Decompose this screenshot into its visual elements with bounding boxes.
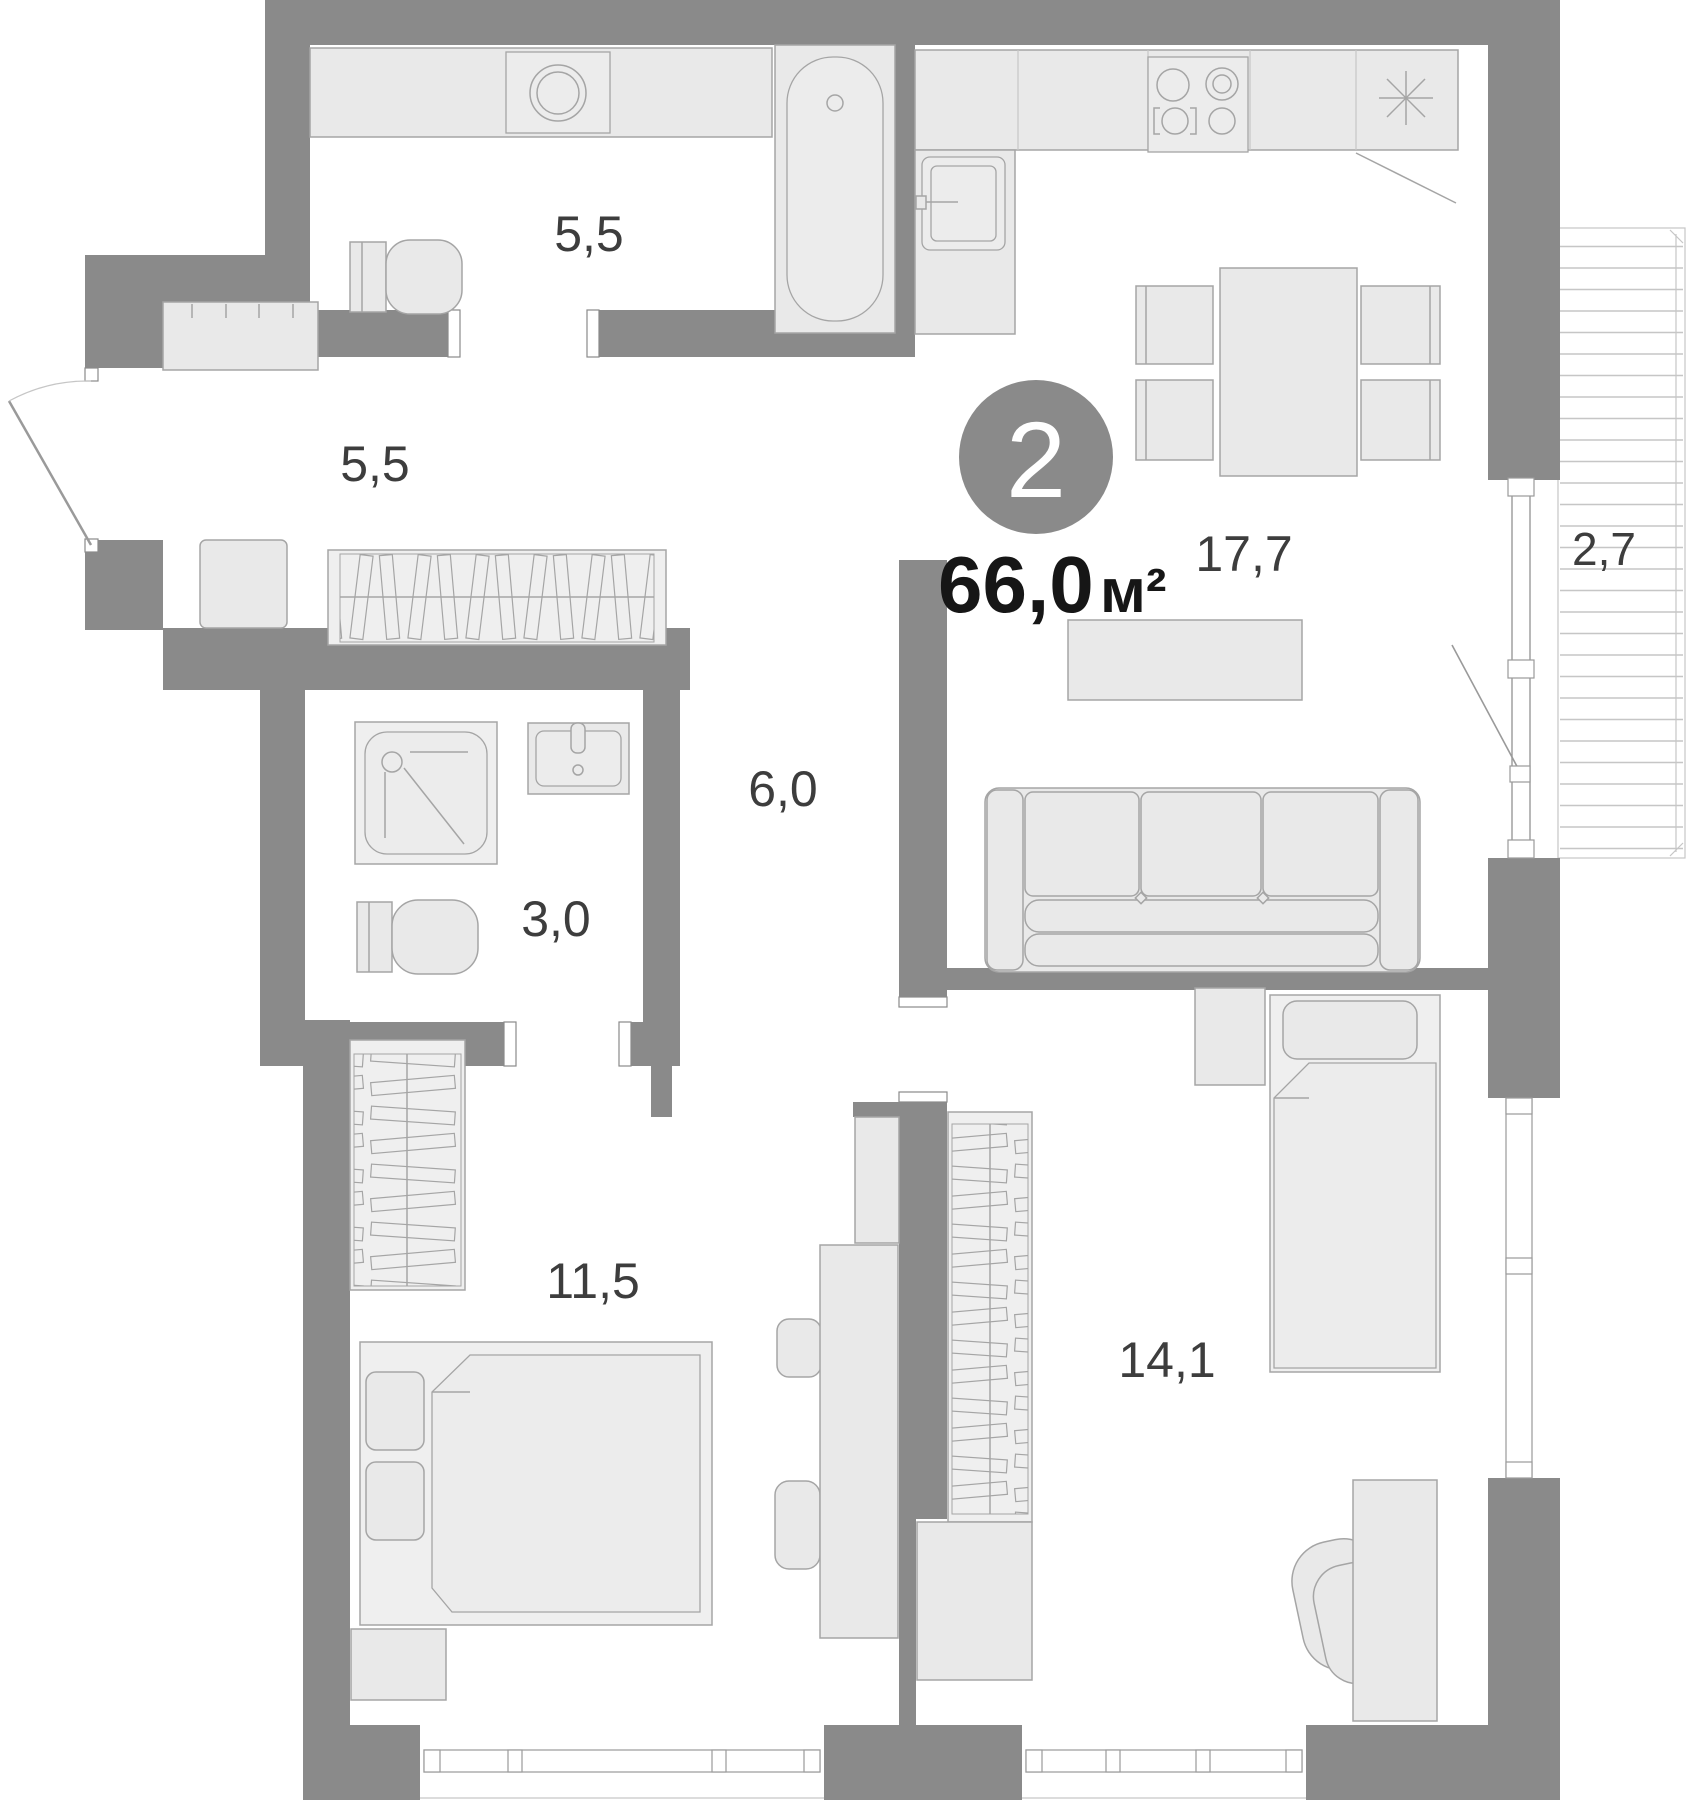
sofa-armrest: [1380, 790, 1418, 970]
kitchen-island: [1068, 620, 1302, 700]
glazing-mullion: [1196, 1750, 1210, 1772]
hallway-wardrobe: [328, 550, 666, 645]
sofa-armrest: [987, 790, 1023, 970]
room-label-bedroom: 11,5: [546, 1253, 640, 1309]
glazing-mullion: [1508, 478, 1534, 496]
wall-segment: [651, 1066, 672, 1117]
room-label-balcony: 2,7: [1572, 523, 1636, 575]
shower-inner: [365, 732, 487, 854]
single-bed-icon: [1270, 995, 1440, 1372]
wall-segment: [853, 1102, 947, 1117]
door-jamb: [899, 997, 947, 1007]
wall-segment: [85, 255, 163, 368]
door-jamb: [448, 310, 460, 357]
dining-chair: [1361, 380, 1440, 460]
glazing-mullion: [712, 1750, 726, 1772]
sofa-cushion: [1141, 792, 1261, 896]
wall-segment: [265, 0, 1560, 45]
wardrobe-clothes: [340, 554, 654, 642]
balcony-door-hinge: [1510, 766, 1530, 782]
sofa-seat-band: [1025, 900, 1378, 932]
dining-chair: [1361, 286, 1440, 364]
wall-segment: [631, 1022, 680, 1066]
tall-cabinet: [855, 1117, 899, 1243]
glazing-mullion: [424, 1750, 440, 1772]
pouf: [200, 540, 287, 628]
room-label-corridor: 6,0: [748, 761, 818, 817]
wall-segment: [260, 690, 305, 1022]
bedroom-2-wardrobe: [948, 1112, 1032, 1522]
dining-table: [1220, 268, 1357, 476]
bed-pillow: [1283, 1001, 1417, 1059]
bed-pillow: [366, 1372, 424, 1450]
window-frame-bottom-left: [424, 1750, 820, 1772]
door-jamb: [85, 539, 98, 552]
toilet-tank: [357, 902, 392, 972]
sofa-cushion: [1263, 792, 1378, 896]
dresser: [917, 1522, 1032, 1680]
door-jambs: [85, 310, 947, 1102]
sofa-cushion: [1025, 792, 1139, 896]
door-jamb: [85, 368, 98, 381]
wall-segment: [1306, 1725, 1560, 1800]
kitchen-sink-icon: [916, 157, 1005, 250]
wall-segment: [899, 1117, 947, 1519]
bedroom-wardrobe: [350, 1040, 465, 1290]
apartment-badge: 2: [959, 380, 1113, 534]
wall-segment: [85, 540, 163, 630]
nightstand: [1195, 988, 1265, 1085]
bedroom-furniture: [350, 1040, 899, 1700]
dining-chair: [1136, 286, 1213, 364]
dining-chair: [1136, 380, 1213, 460]
glazing-mullion: [1508, 660, 1534, 678]
glazing-mullion: [1106, 1750, 1120, 1772]
wall-segment: [1488, 858, 1560, 1098]
wall-segment: [265, 0, 310, 255]
sink-basin: [931, 166, 996, 241]
shower-tray-icon: [355, 722, 497, 864]
room-label-hallway: 5,5: [340, 436, 410, 492]
door-jamb: [899, 1092, 947, 1102]
wall-segment: [303, 1020, 350, 1800]
dining-set: [1136, 268, 1440, 476]
room-label-shower-room: 3,0: [521, 891, 591, 947]
floor-plan-canvas: 2 66,0 м² 5,5 5,5 17,7 2,7 6,0 3,0 11,5 …: [0, 0, 1688, 1800]
desk: [820, 1245, 898, 1638]
window-frame-bottom-right: [1026, 1750, 1302, 1772]
badge-rooms-count: 2: [1006, 399, 1066, 520]
nightstand: [351, 1629, 446, 1700]
wall-segment: [163, 255, 310, 302]
stove-icon: [1148, 57, 1248, 152]
door-jamb: [619, 1022, 631, 1066]
shoe-cabinet: [163, 302, 318, 370]
wall-segment: [310, 310, 448, 357]
basin-faucet: [571, 723, 585, 753]
desk-chair: [777, 1319, 821, 1377]
desk-chair: [775, 1481, 820, 1569]
bed-pillow: [366, 1462, 424, 1540]
wall-segment: [643, 690, 680, 1022]
door-jamb: [587, 310, 599, 357]
stove-outline: [1148, 57, 1248, 152]
wall-segment: [824, 1725, 1022, 1800]
bed-blanket: [432, 1355, 700, 1612]
sink-faucet: [916, 196, 926, 209]
window-frame-right: [1506, 1098, 1532, 1478]
room-label-bathroom: 5,5: [554, 206, 624, 262]
glazing-mullion: [804, 1750, 820, 1772]
door-swing-arc: [9, 381, 91, 401]
total-area-value: 66,0: [938, 540, 1094, 629]
entrance-door: [9, 381, 91, 545]
glazing-mullion: [1506, 1462, 1532, 1478]
fridge-door-swing: [1356, 153, 1456, 203]
glazing-mullion: [1286, 1750, 1302, 1772]
desk: [1353, 1480, 1437, 1721]
glazing-mullion: [508, 1750, 522, 1772]
double-bed-icon: [360, 1342, 712, 1625]
room-label-kitchen-living: 17,7: [1195, 526, 1292, 582]
washbasin-2-icon: [528, 723, 629, 794]
toilet-tank: [350, 242, 386, 312]
door-jamb: [504, 1022, 516, 1066]
door-leaf: [9, 401, 91, 545]
glazing-mullion: [1508, 840, 1534, 858]
wall-segment: [899, 1519, 916, 1725]
sofa-icon: [985, 788, 1420, 972]
bed-blanket: [1274, 1063, 1436, 1368]
toilet-bowl: [386, 240, 462, 314]
glazing-mullion: [1506, 1258, 1532, 1274]
total-area-unit: м²: [1100, 557, 1167, 626]
floor-plan: 2 66,0 м² 5,5 5,5 17,7 2,7 6,0 3,0 11,5 …: [0, 0, 1688, 1800]
toilet-icon: [350, 240, 462, 314]
wall-segment: [1488, 45, 1560, 480]
sofa-seat-band: [1025, 934, 1378, 966]
wall-segment: [895, 45, 915, 357]
bathtub-inner: [787, 57, 883, 321]
glazing-mullion: [1506, 1098, 1532, 1114]
bathroom-furniture: [310, 45, 895, 333]
bathtub-icon: [775, 45, 895, 333]
toilet-bowl: [392, 900, 478, 974]
room-label-bedroom-second: 14,1: [1118, 1332, 1215, 1388]
glazing-mullion: [1026, 1750, 1042, 1772]
toilet-2-icon: [357, 900, 478, 974]
